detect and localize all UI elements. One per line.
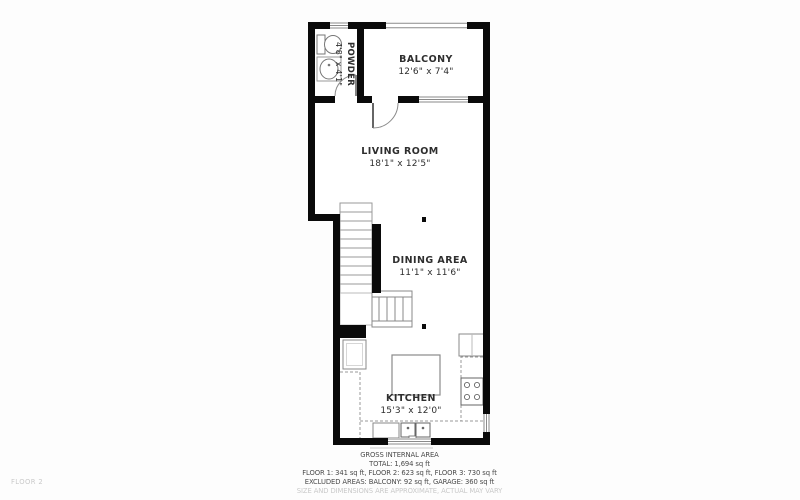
drain-icon: [422, 427, 425, 430]
area-summary: GROSS INTERNAL AREA TOTAL: 1,694 sq ft F…: [0, 451, 799, 496]
summary-disclaimer: SIZE AND DIMENSIONS ARE APPROXIMATE, ACT…: [0, 487, 799, 496]
toilet-tank-icon: [317, 35, 325, 54]
wall-segment: [372, 224, 381, 293]
room-name: KITCHEN: [380, 392, 441, 405]
dishwasher-icon: [373, 423, 399, 438]
wall-segment: [308, 96, 335, 103]
stair-railing: [372, 291, 412, 327]
wall-segment: [483, 432, 490, 445]
room-label-kitchen: KITCHEN 15'3" x 12'0": [380, 392, 441, 418]
summary-floors: FLOOR 1: 341 sq ft, FLOOR 2: 623 sq ft, …: [0, 469, 799, 478]
room-name: POWDER: [344, 29, 355, 99]
room-label-powder: POWDER 4'8" x 4'1": [333, 29, 355, 99]
wall-segment: [357, 22, 364, 103]
kitchen-sink-icon: [416, 423, 430, 437]
wall-segment: [333, 325, 366, 338]
room-dims: 15'3" x 12'0": [380, 405, 441, 418]
column-marker: [422, 217, 426, 222]
wall-segment: [308, 22, 315, 221]
wall-segment: [468, 96, 483, 103]
summary-title: GROSS INTERNAL AREA: [0, 451, 799, 460]
summary-excluded: EXCLUDED AREAS: BALCONY: 92 sq ft, GARAG…: [0, 478, 799, 487]
room-label-living: LIVING ROOM 18'1" x 12'5": [361, 145, 438, 171]
drain-icon: [407, 427, 410, 430]
stair-landing: [340, 293, 372, 325]
room-label-balcony: BALCONY 12'6" x 7'4": [398, 53, 453, 79]
room-dims: 11'1" x 11'6": [392, 267, 467, 280]
kitchen-island: [392, 355, 440, 395]
faucet-dot-icon: [328, 64, 331, 67]
kitchen-sink-icon: [401, 423, 415, 437]
summary-total: TOTAL: 1,694 sq ft: [0, 460, 799, 469]
room-dims: 18'1" x 12'5": [361, 158, 438, 171]
wall-segment: [348, 22, 357, 29]
room-dims: 4'8" x 4'1": [333, 29, 344, 99]
column-marker: [422, 324, 426, 329]
wall-segment: [398, 96, 419, 103]
room-name: BALCONY: [398, 53, 453, 66]
wall-segment: [357, 96, 372, 103]
wall-segment: [483, 22, 490, 414]
floor-label: FLOOR 2: [11, 478, 43, 486]
floor-plan-page: POWDER 4'8" x 4'1" BALCONY 12'6" x 7'4" …: [0, 0, 800, 500]
wall-segment: [333, 438, 388, 445]
room-name: LIVING ROOM: [361, 145, 438, 158]
room-dims: 12'6" x 7'4": [398, 66, 453, 79]
wall-segment: [431, 438, 490, 445]
stove-icon: [461, 378, 483, 405]
room-label-dining: DINING AREA 11'1" x 11'6": [392, 254, 467, 280]
room-name: DINING AREA: [392, 254, 467, 267]
